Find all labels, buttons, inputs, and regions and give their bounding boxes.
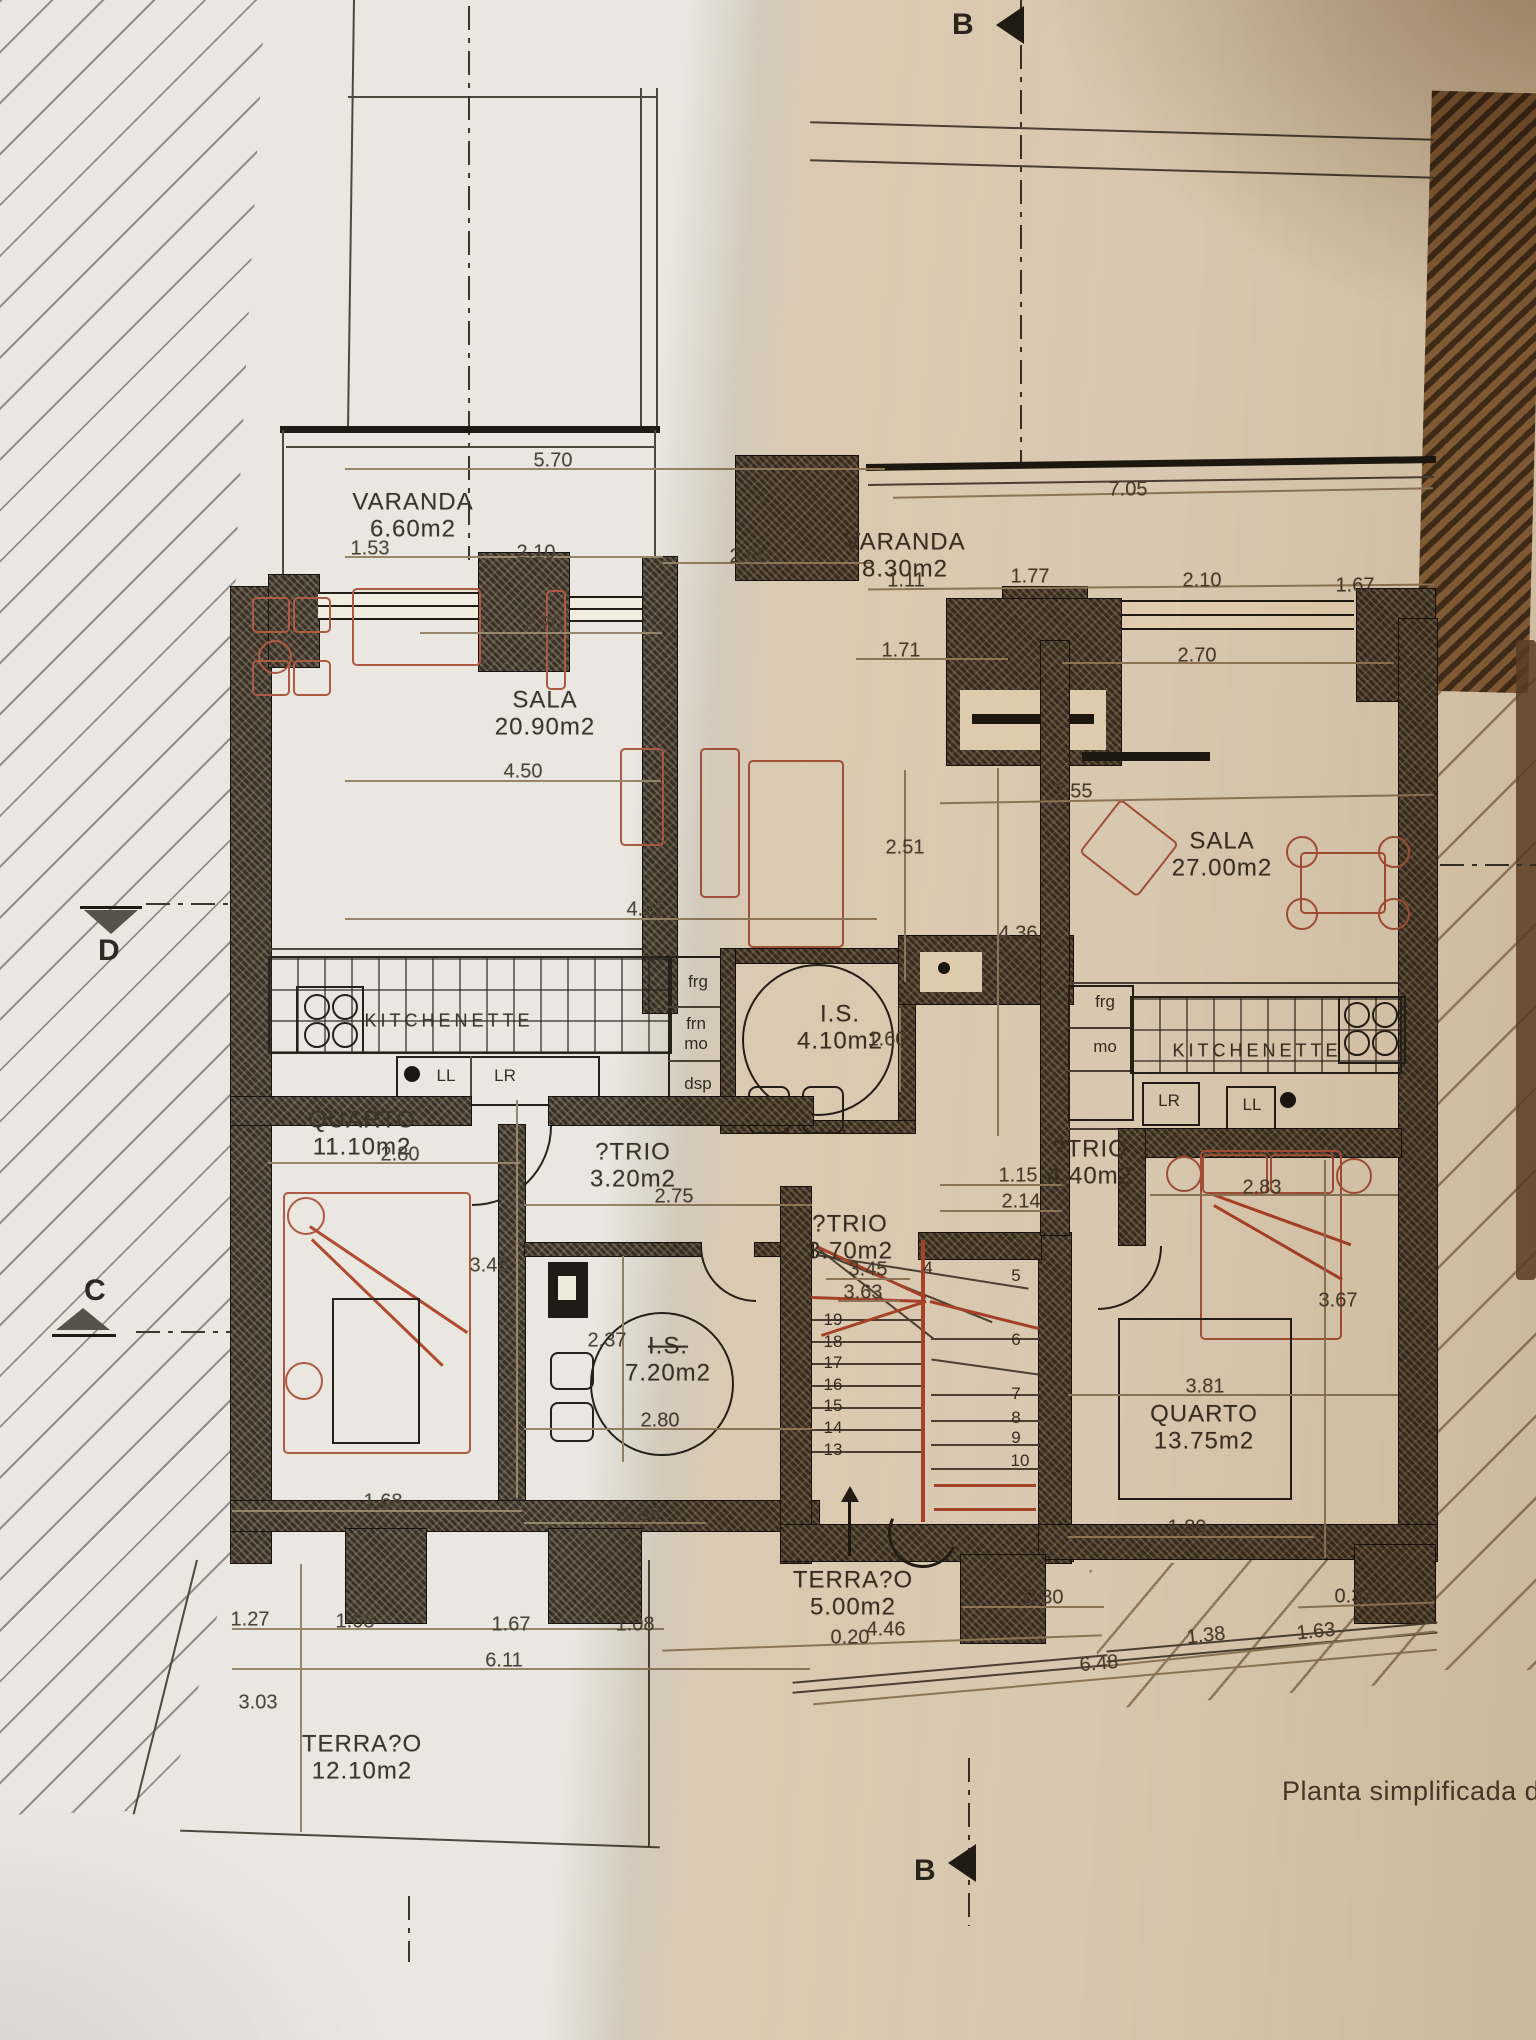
dimension-label: 6.11 <box>485 1650 522 1673</box>
dimension-label: 2.37 <box>588 1330 627 1353</box>
fixture-label: frg <box>688 972 708 992</box>
dimension-label: 4.50 <box>504 761 543 784</box>
dimension-label: 3.67 <box>1319 1290 1358 1313</box>
fixture-label: mo <box>684 1034 708 1054</box>
dimension-label: 1.11 <box>887 570 924 593</box>
dimension-label: 1.60 <box>868 1029 907 1052</box>
fixture-label: frg <box>1095 992 1115 1012</box>
stair-number: 13 <box>824 1440 843 1460</box>
stair-number: 6 <box>1011 1330 1020 1350</box>
dimension-label: 1.77 <box>1011 566 1050 589</box>
dimension-label: 2.66 <box>730 546 769 569</box>
fixture-label: frn <box>686 1014 706 1034</box>
dimension-label: 0.37 <box>1335 1586 1374 1609</box>
dimension-label: 7.05 <box>1109 479 1148 502</box>
dimension-label: 1.15 <box>999 1165 1038 1188</box>
dimension-label: 1.38 <box>1185 1623 1226 1650</box>
stair-number: 10 <box>1011 1451 1030 1471</box>
dimension-label: 1.68 <box>622 1504 661 1527</box>
fixture-label: LL <box>437 1066 456 1086</box>
stair-number: 9 <box>1011 1428 1020 1448</box>
dimension-label: 5.70 <box>534 450 573 473</box>
dimension-label: 2.10 <box>517 542 556 565</box>
dimension-label: 4.36 <box>999 923 1038 946</box>
room-label: ?TRIO3.70m2 <box>807 1211 893 1266</box>
room-label: SALA20.90m2 <box>495 687 595 742</box>
stair-number: 17 <box>824 1353 843 1373</box>
dimension-label: 1.89 <box>1168 1517 1207 1540</box>
fixture-label: dsp <box>684 1074 711 1094</box>
dimension-label: 7.55 <box>1054 781 1093 804</box>
dimension-label: 3.48 <box>470 1255 509 1278</box>
dimension-label: 0.30 <box>1025 1587 1064 1610</box>
room-label: ?TRIO4.40m2 <box>1047 1136 1133 1191</box>
dimension-label: 2.83 <box>1243 1177 1282 1200</box>
dimension-label: 1.27 <box>231 1609 270 1632</box>
fixture-label: LL <box>1243 1095 1262 1115</box>
dimension-label: 2.70 <box>524 614 563 637</box>
stair-number: 8 <box>1011 1408 1020 1428</box>
room-label: KITCHENETTE <box>364 1011 533 1032</box>
dimension-label: 3.45 <box>849 1259 888 1282</box>
room-label: QUARTO13.75m2 <box>1150 1401 1258 1456</box>
room-label: VARANDA6.60m2 <box>352 489 473 544</box>
fixture-label: mo <box>1093 1037 1117 1057</box>
room-label: TERRA?O5.00m2 <box>793 1567 913 1622</box>
dimension-label: 1.08 <box>616 1614 655 1637</box>
labels-layer: VARANDA6.60m2VARANDA8.30m2SALA20.90m2SAL… <box>0 0 1536 2040</box>
stair-number: 7 <box>1011 1384 1020 1404</box>
dimension-label: 4.21 <box>627 899 666 922</box>
stair-number: 16 <box>824 1375 843 1395</box>
stair-number: 19 <box>824 1310 843 1330</box>
dimension-label: 3.63 <box>844 1282 883 1305</box>
floor-plan-photo: B B D C Planta simplificada d VARANDA6.6… <box>0 0 1536 2040</box>
fixture-label: LR <box>494 1066 516 1086</box>
dimension-label: 2.51 <box>886 837 925 860</box>
dimension-label: 2.10 <box>1183 570 1222 593</box>
dimension-label: 6.48 <box>1079 1651 1120 1677</box>
dimension-label: 1.71 <box>882 640 921 663</box>
dimension-label: 0.20 <box>831 1627 870 1650</box>
dimension-label: 4.46 <box>867 1619 906 1642</box>
dimension-label: 2.70 <box>1178 645 1217 668</box>
dimension-label: 1.67 <box>492 1614 531 1637</box>
dimension-label: 2.75 <box>655 1186 694 1209</box>
stair-number: 15 <box>824 1396 843 1416</box>
fixture-label: LR <box>1158 1091 1180 1111</box>
stair-number: 18 <box>824 1332 843 1352</box>
dimension-label: 2.80 <box>641 1410 680 1433</box>
dimension-label: 1.67 <box>1336 575 1375 598</box>
room-label: TERRA?O12.10m2 <box>302 1731 422 1786</box>
dimension-label: 1.53 <box>351 538 390 561</box>
dimension-label: 1.63 <box>1295 1619 1336 1646</box>
stair-number: 5 <box>1011 1266 1020 1286</box>
dimension-label: 2.14 <box>1002 1191 1041 1214</box>
stair-number: 4 <box>923 1258 932 1278</box>
room-label: SALA27.00m2 <box>1172 828 1272 883</box>
room-label: KITCHENETTE <box>1172 1041 1341 1062</box>
dimension-label: 3.03 <box>239 1692 278 1715</box>
stair-number: 14 <box>824 1418 843 1438</box>
room-label: I.S.7.20m2 <box>625 1333 711 1388</box>
dimension-label: 3.81 <box>1186 1376 1225 1399</box>
dimension-label: 1.68 <box>364 1491 403 1514</box>
dimension-label: 1.08 <box>336 1611 375 1634</box>
dimension-label: 2.80 <box>381 1144 420 1167</box>
